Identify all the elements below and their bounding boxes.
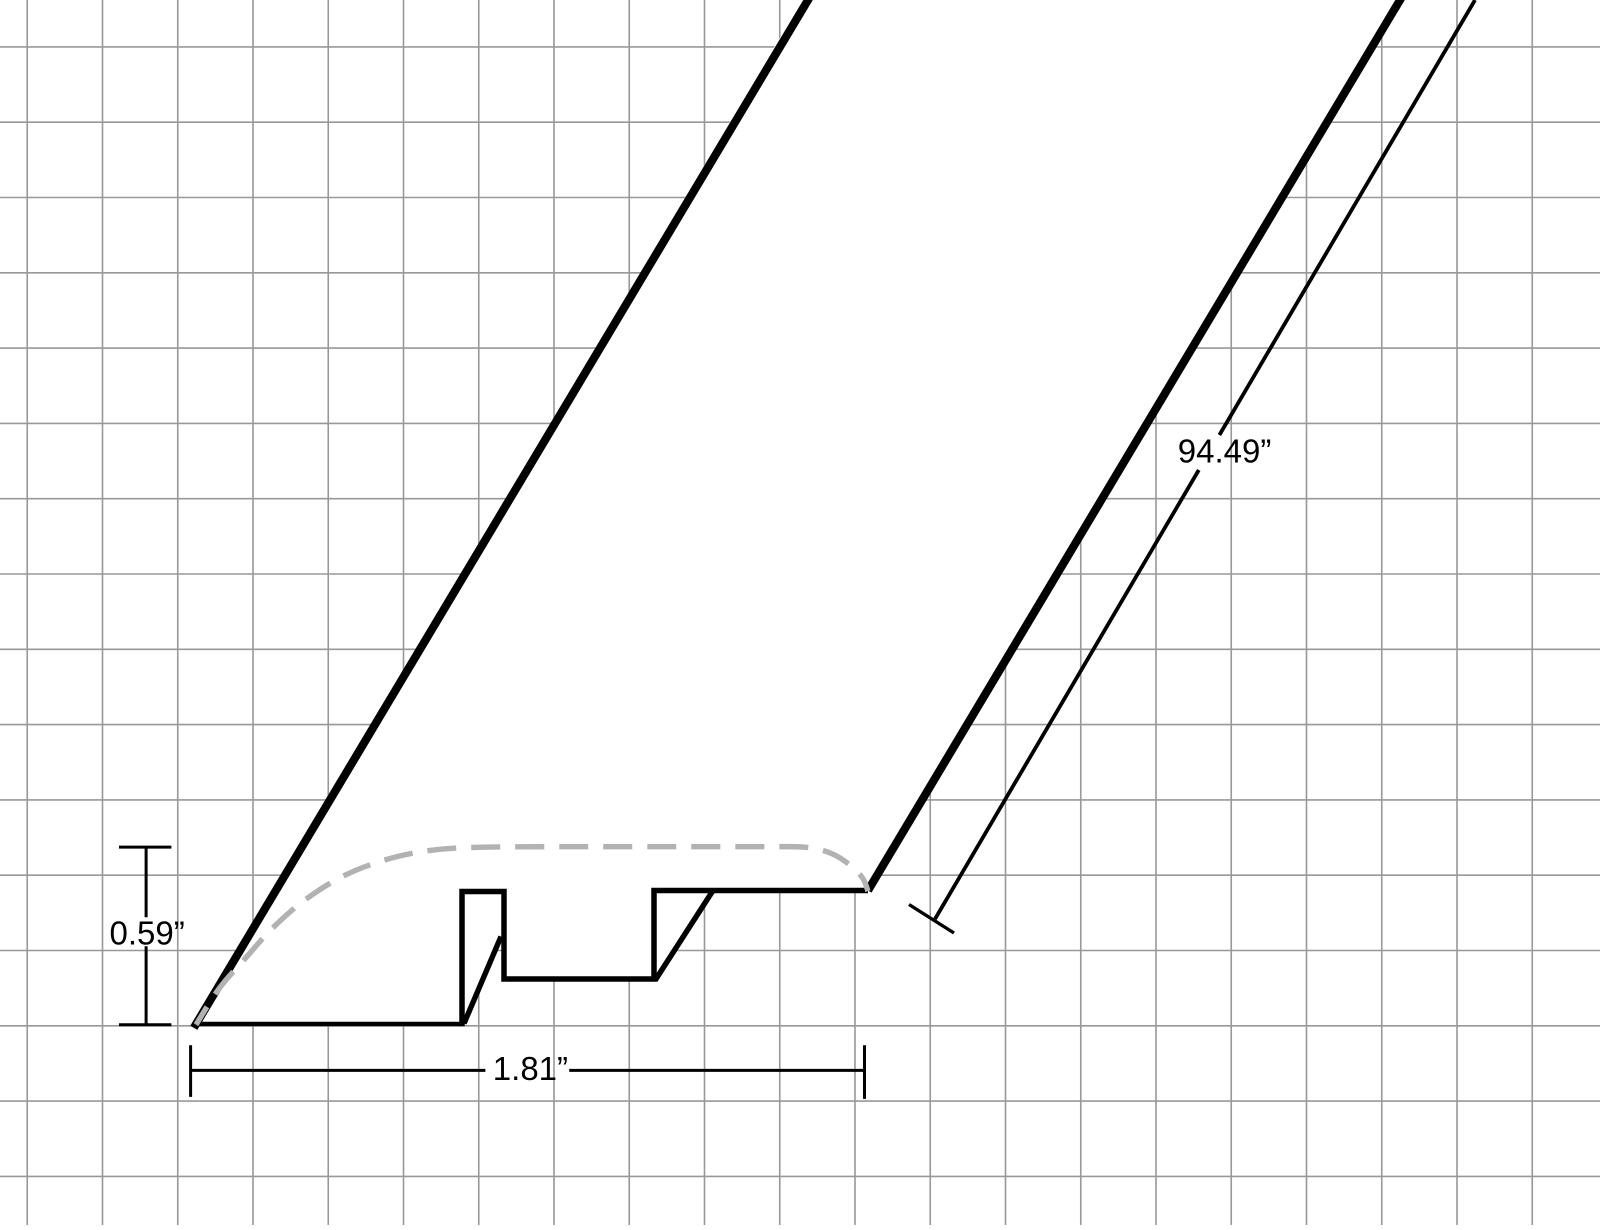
svg-text:0.59”: 0.59”: [110, 914, 185, 951]
svg-text:1.81”: 1.81”: [493, 1050, 568, 1087]
svg-text:94.49”: 94.49”: [1178, 433, 1272, 470]
